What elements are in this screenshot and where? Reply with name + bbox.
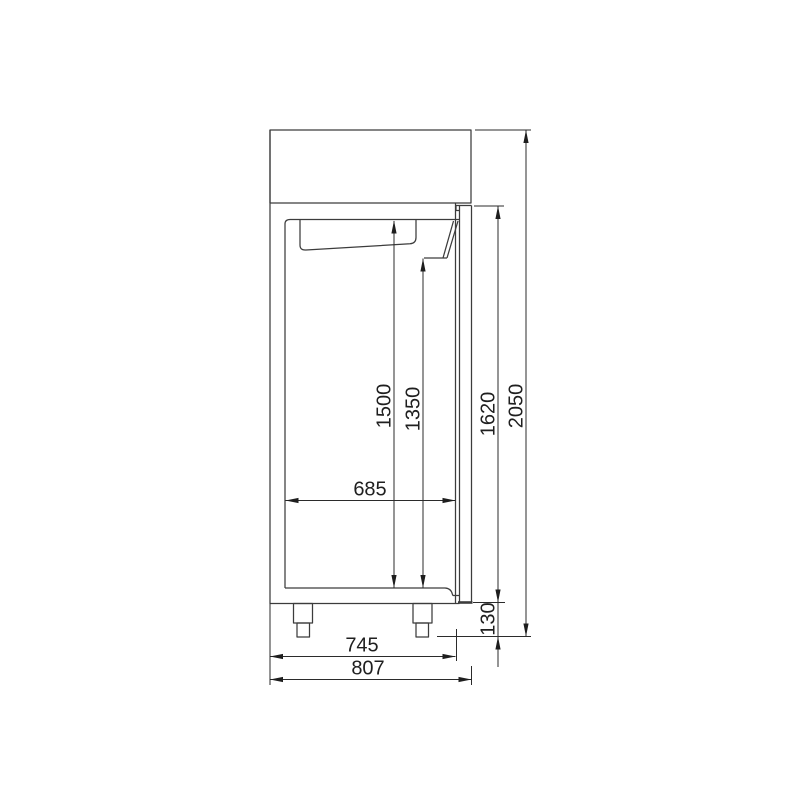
arrow-up-icon: [495, 637, 500, 650]
arrow-right-icon: [443, 654, 456, 659]
dim-interior-depth: 685: [286, 479, 456, 504]
right-foot: [416, 623, 429, 637]
cabinet-body: [270, 130, 460, 604]
arrow-down-icon: [420, 575, 425, 588]
dim-label-2050: 2050: [506, 384, 528, 429]
arrow-right-icon: [443, 498, 456, 503]
dim-label-745: 745: [345, 635, 378, 657]
air-deflector: [424, 221, 458, 258]
left-foot: [297, 623, 310, 637]
arrow-up-icon: [391, 221, 396, 234]
arrow-down-icon: [391, 575, 396, 588]
compressor-box: [270, 130, 471, 203]
arrow-right-icon: [459, 677, 472, 682]
arrow-left-icon: [270, 654, 283, 659]
left-leg: [294, 604, 313, 624]
tray-outline: [300, 220, 416, 250]
right-leg: [413, 604, 432, 624]
door-panel: [456, 206, 473, 603]
arrow-left-icon: [270, 677, 283, 682]
arrow-up-icon: [523, 130, 528, 143]
arrow-up-icon: [420, 259, 425, 272]
arrow-left-icon: [286, 498, 299, 503]
dim-door-height: 1620: [473, 206, 505, 603]
interior-liner: [285, 220, 460, 596]
liner-left-top: [285, 220, 460, 589]
arrow-up-icon: [495, 206, 500, 219]
evaporator-tray: [300, 220, 416, 250]
dim-plinth-height: 130: [478, 602, 501, 667]
arrow-down-icon: [495, 590, 500, 603]
arrow-down-icon: [523, 624, 528, 637]
dim-interior-height-front: 1350: [403, 259, 426, 589]
cabinet-outline: [270, 130, 471, 604]
door-faces: [456, 206, 472, 603]
dim-label-1350: 1350: [403, 387, 425, 432]
dim-label-1500: 1500: [374, 384, 396, 429]
technical-drawing: 1500 1350 685 1620 130 2050: [0, 0, 800, 800]
dim-label-807: 807: [351, 658, 384, 680]
dim-interior-height-rear: 1500: [374, 221, 397, 589]
liner-bottom: [285, 588, 460, 596]
dim-label-685: 685: [353, 479, 386, 501]
dim-label-130: 130: [478, 602, 500, 635]
legs: [294, 604, 433, 638]
drawing-canvas: 1500 1350 685 1620 130 2050: [0, 0, 800, 800]
dim-label-1620: 1620: [478, 392, 500, 437]
dim-overall-depth: 807: [270, 658, 472, 686]
